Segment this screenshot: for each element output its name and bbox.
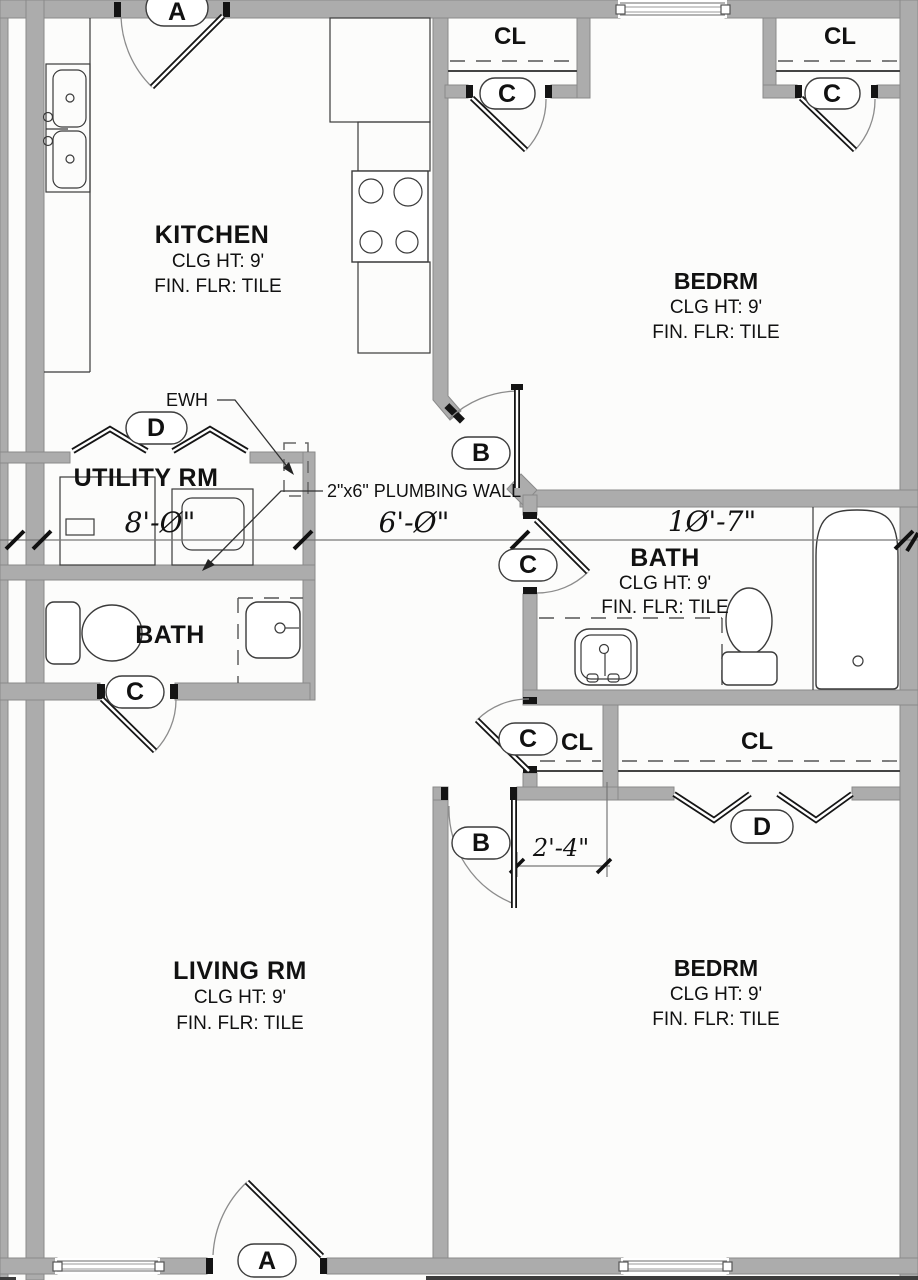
door-tag-c-cl1: C: [498, 80, 516, 108]
bedroom2-ceiling: CLG HT: 9': [670, 984, 762, 1005]
bedroom1-floor: FIN. FLR: TILE: [652, 322, 779, 343]
north-wall-left: [0, 0, 620, 18]
hall-south-wall: [517, 787, 618, 800]
door-tag-c-bath1: C: [126, 678, 144, 706]
bathtub: [816, 510, 898, 689]
north-wall-right: [725, 0, 918, 18]
kitchen-fixtures: [44, 18, 431, 372]
cl4-front-wall-left: [618, 787, 674, 800]
kitchen-name: KITCHEN: [155, 221, 270, 249]
counter-right-upper: [358, 122, 430, 171]
dimension-line: 8'-Ø" 6'-Ø" 1Ø'-7": [0, 505, 918, 551]
cl1-front-wall-right: [551, 85, 577, 98]
south-wall-seg1: [0, 1258, 57, 1274]
bedroom1-name: BEDRM: [674, 268, 758, 294]
cl2-front-wall-right: [877, 85, 900, 98]
toilet-bath1: [46, 602, 142, 664]
south-wall-seg2: [158, 1258, 207, 1274]
south-wall-seg3: [327, 1258, 623, 1274]
bath2-floor: FIN. FLR: TILE: [601, 597, 728, 618]
sink-bath1: [246, 602, 300, 658]
door-tag-b2: B: [472, 829, 490, 857]
cl2-front-wall-left: [763, 85, 797, 98]
door-b1-bedroom1: [444, 384, 523, 488]
ewh-label: EWH: [166, 390, 208, 410]
closet3-label: CL: [561, 729, 593, 756]
bath1-south-wall-right: [175, 683, 310, 700]
bath1-name: BATH: [135, 621, 205, 649]
bedroom1-ceiling: CLG HT: 9': [670, 297, 762, 318]
cl1-east-wall: [577, 18, 590, 98]
east-wall: [900, 0, 918, 1280]
kitchen-bedroom-wall: [433, 18, 461, 420]
toilet-bath2: [722, 588, 777, 685]
bedroom2-floor: FIN. FLR: TILE: [652, 1009, 779, 1030]
utility-north-wall-left: [0, 452, 70, 463]
door-tag-c-cl2: C: [823, 80, 841, 108]
door-tag-a2: A: [258, 1247, 276, 1275]
kitchen-ceiling: CLG HT: 9': [172, 251, 264, 272]
plumbing-wall-label: 2"x6" PLUMBING WALL: [327, 481, 521, 501]
bedroom2-name: BEDRM: [674, 955, 758, 981]
double-sink: [44, 64, 91, 192]
door-tag-c-bath2: C: [519, 551, 537, 579]
closet4-label: CL: [741, 728, 773, 755]
closet2-label: CL: [824, 23, 856, 50]
door-tag-d1: D: [147, 414, 165, 442]
window-living-south: [53, 1258, 164, 1274]
closet1-label: CL: [494, 23, 526, 50]
adjacent-wall-strip: [0, 0, 8, 1280]
dim-bath-width: 1Ø'-7": [668, 505, 757, 538]
door-tag-d2: D: [753, 813, 771, 841]
plumbing-wall: [0, 565, 315, 580]
south-wall-seg4: [727, 1258, 918, 1274]
dim-utility-width: 8'-Ø": [125, 506, 196, 539]
west-wall: [26, 0, 44, 1280]
counter-right-lower: [358, 262, 430, 353]
window-bedroom2-south: [619, 1258, 732, 1274]
bath2-south-wall: [523, 690, 918, 705]
annotation-plumbing-wall: 2"x6" PLUMBING WALL: [202, 481, 521, 571]
door-tag-a1: A: [168, 0, 186, 26]
living-bedroom2-wall: [433, 800, 448, 1258]
stove: [352, 171, 428, 262]
living-name: LIVING RM: [173, 957, 307, 985]
bath1-south-wall-left: [0, 683, 100, 700]
window-bedroom1-north: [616, 0, 730, 18]
bath2-name: BATH: [630, 544, 700, 572]
floor-plan-page: 8'-Ø" 6'-Ø" 1Ø'-7" 2'-4" EWH 2"x6" PLUMB…: [0, 0, 918, 1280]
bath2-ceiling: CLG HT: 9': [619, 573, 711, 594]
door-tag-b1: B: [472, 439, 490, 467]
door-tag-c-cl3: C: [519, 725, 537, 753]
floor-plan-drawing: 8'-Ø" 6'-Ø" 1Ø'-7" 2'-4" EWH 2"x6" PLUMB…: [0, 0, 918, 1280]
cl4-front-wall-right: [852, 787, 900, 800]
cl3-cl4-divider-wall: [603, 705, 618, 787]
cl1-front-wall-left: [445, 85, 468, 98]
kitchen-floor: FIN. FLR: TILE: [154, 276, 281, 297]
dim-hall-width: 6'-Ø": [379, 506, 450, 539]
living-floor: FIN. FLR: TILE: [176, 1013, 303, 1034]
page-edge: [0, 1276, 918, 1280]
hall-bath2-wall-seg2: [523, 594, 537, 697]
utility-name: UTILITY RM: [74, 464, 219, 492]
living-ceiling: CLG HT: 9': [194, 987, 286, 1008]
dim-wall-segment: 2'-4": [532, 834, 589, 862]
sink-bath2: [575, 629, 637, 685]
refrigerator: [330, 18, 430, 122]
